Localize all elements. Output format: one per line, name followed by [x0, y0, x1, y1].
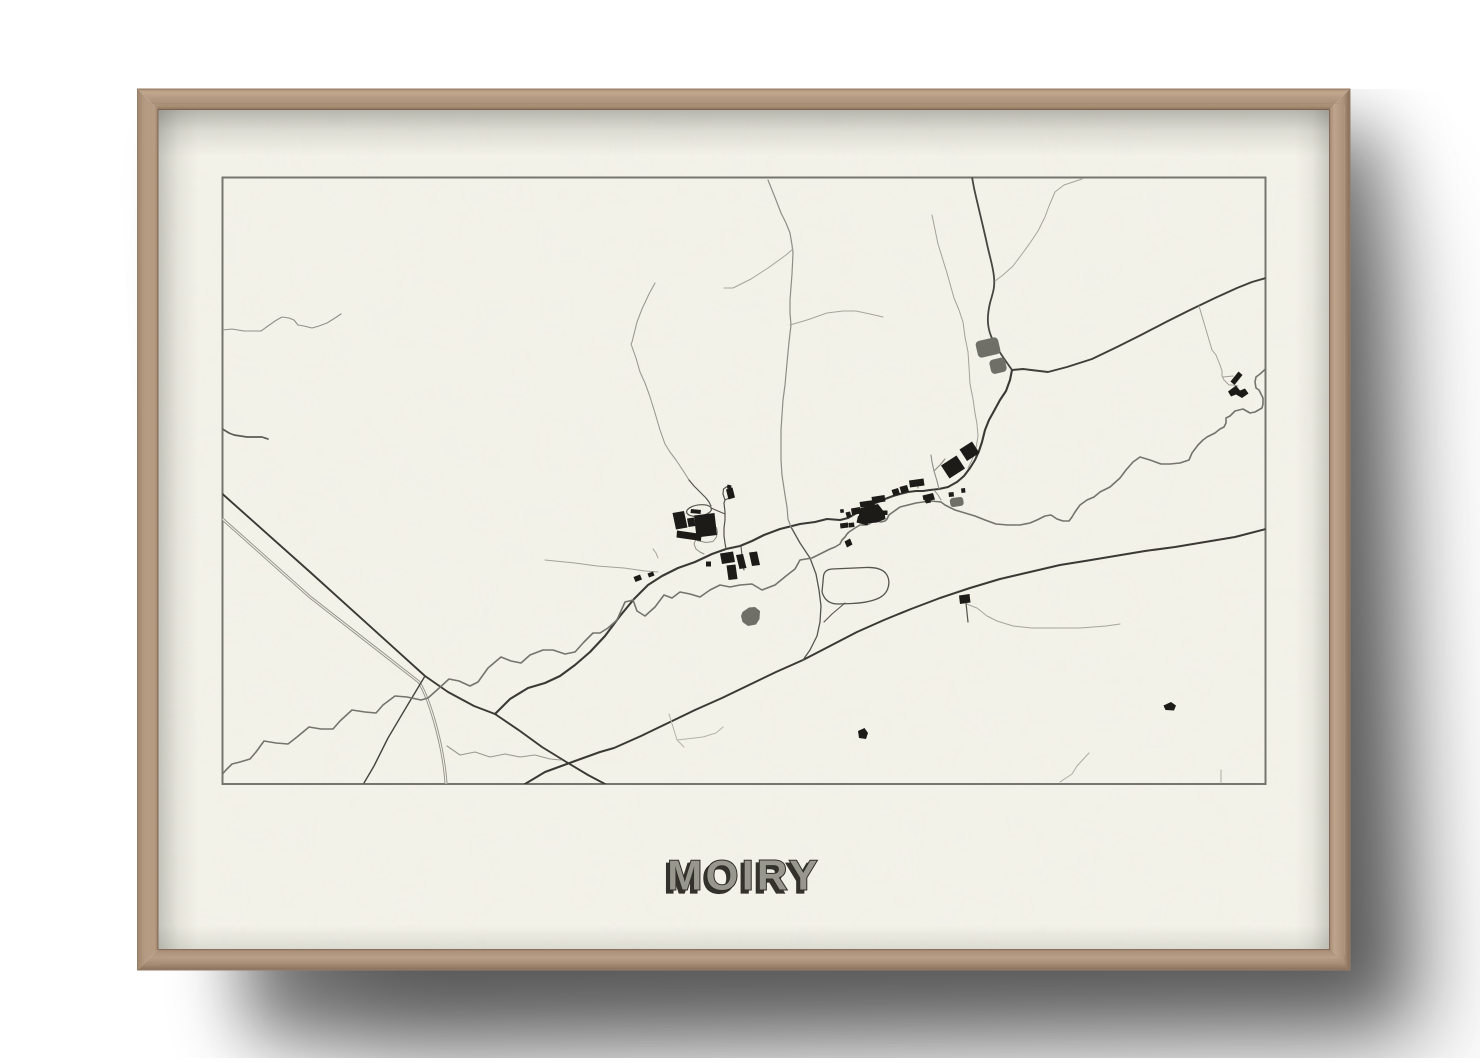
svg-text:MOIRY: MOIRY: [667, 852, 821, 899]
